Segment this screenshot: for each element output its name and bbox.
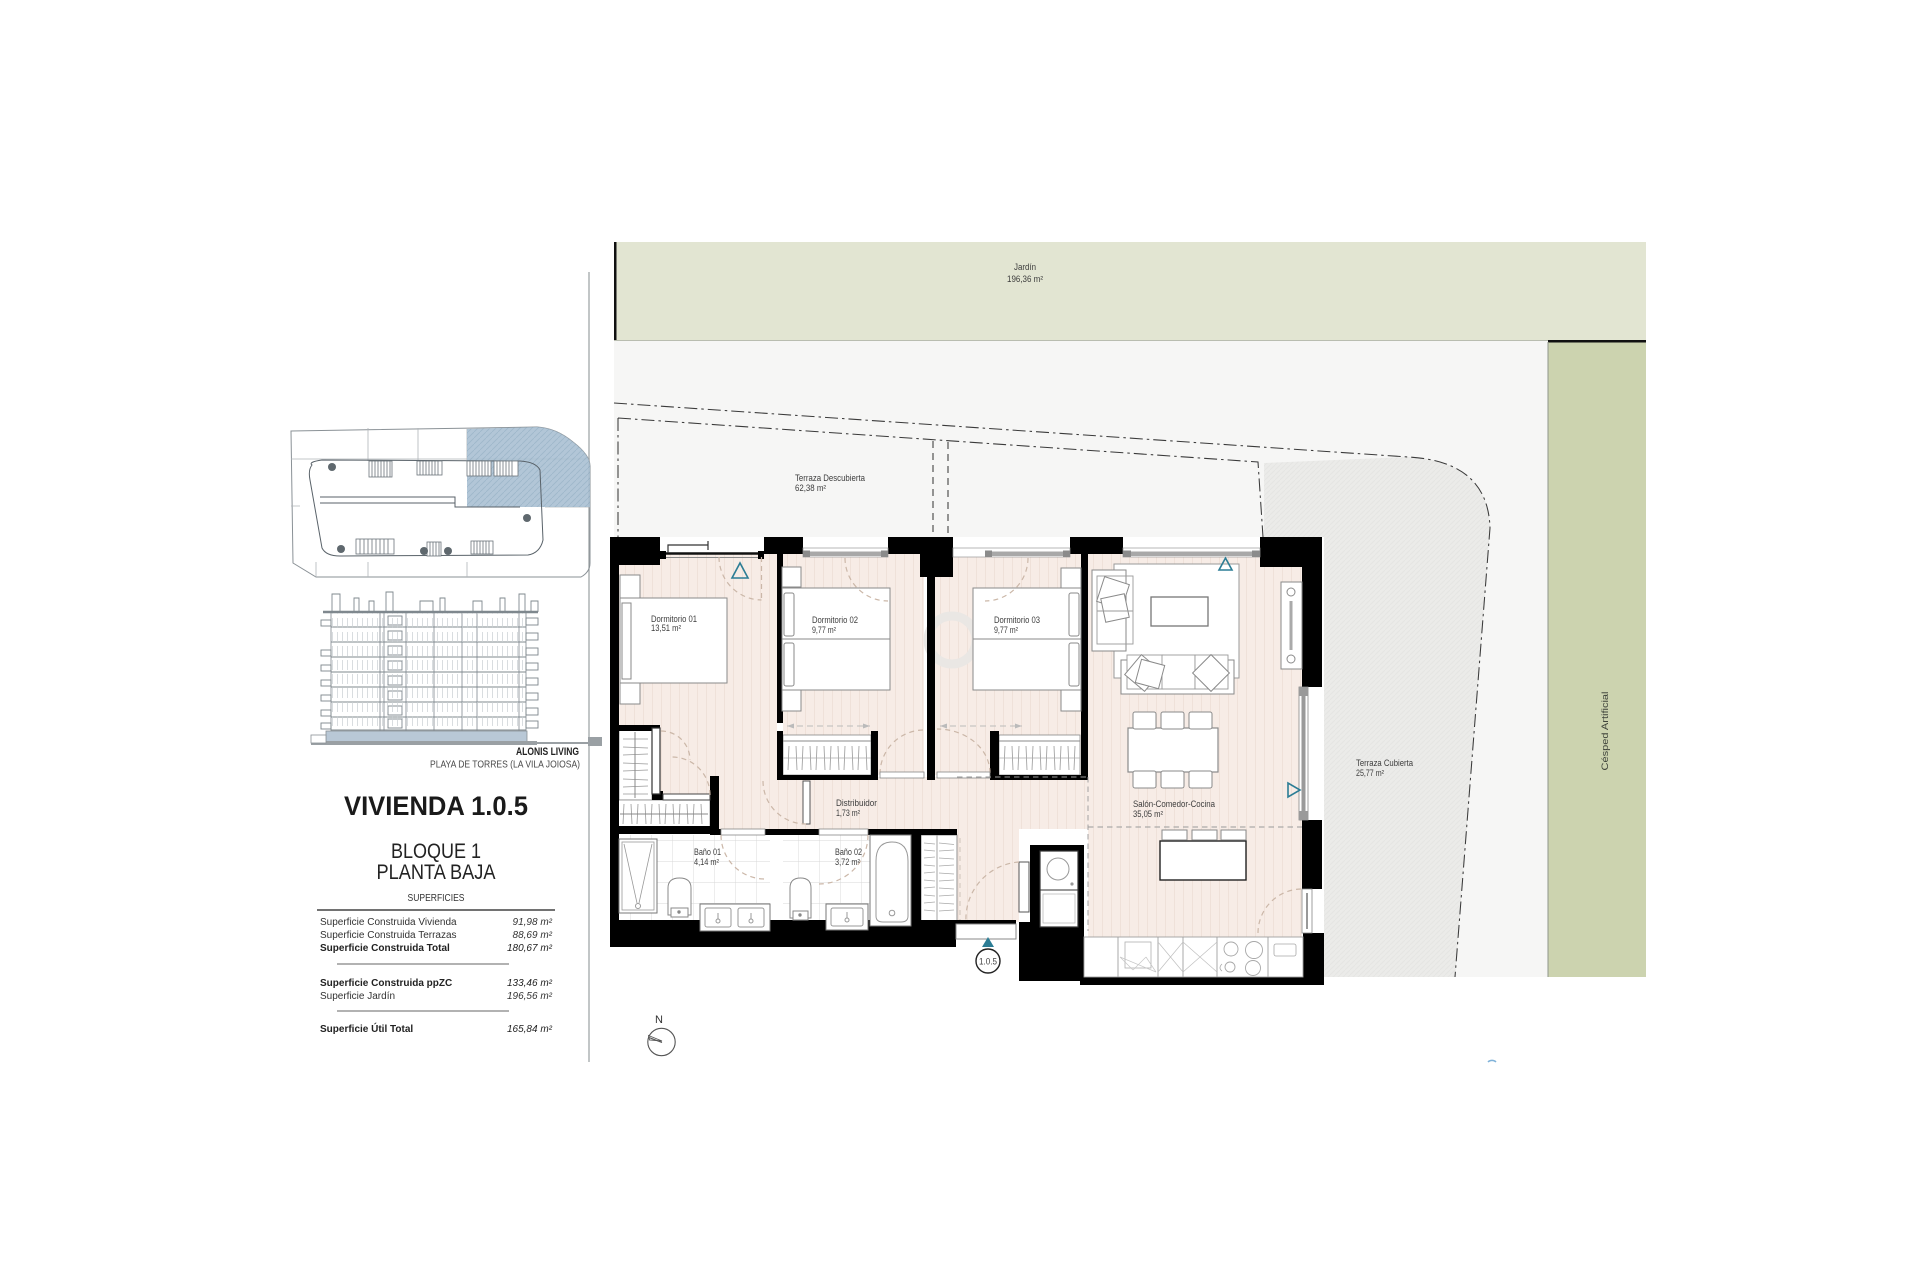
svg-text:Superficie Construida Vivienda: Superficie Construida Vivienda (320, 917, 457, 928)
svg-text:1.0.5: 1.0.5 (979, 957, 997, 967)
svg-text:Terraza Cubierta: Terraza Cubierta (1356, 758, 1413, 768)
svg-text:Dormitorio 02: Dormitorio 02 (812, 615, 858, 625)
svg-text:9,77 m²: 9,77 m² (812, 625, 836, 635)
svg-text:PLANTA BAJA: PLANTA BAJA (377, 861, 496, 884)
svg-text:Superficie Construida Terrazas: Superficie Construida Terrazas (320, 930, 457, 941)
svg-text:4,14 m²: 4,14 m² (694, 857, 719, 867)
svg-text:Baño 02: Baño 02 (835, 847, 862, 857)
svg-text:Superficie Útil Total: Superficie Útil Total (320, 1022, 413, 1035)
svg-text:3,72 m²: 3,72 m² (835, 857, 860, 867)
svg-text:Terraza Descubierta: Terraza Descubierta (795, 473, 865, 483)
svg-text:Salón-Comedor-Cocina: Salón-Comedor-Cocina (1133, 799, 1215, 809)
svg-text:ALONIS LIVING: ALONIS LIVING (516, 746, 579, 758)
svg-text:Superficie Construida Total: Superficie Construida Total (320, 943, 450, 954)
svg-text:91,98 m²: 91,98 m² (513, 917, 553, 928)
svg-text:88,69 m²: 88,69 m² (513, 930, 553, 941)
svg-text:9,77 m²: 9,77 m² (994, 625, 1018, 635)
svg-text:Césped Artificial: Césped Artificial (1600, 692, 1611, 771)
svg-text:Superficie Construida ppZC: Superficie Construida ppZC (320, 978, 452, 989)
svg-text:Superficie Jardín: Superficie Jardín (320, 991, 395, 1002)
svg-text:13,51 m²: 13,51 m² (651, 623, 681, 633)
svg-text:180,67 m²: 180,67 m² (507, 943, 553, 954)
svg-text:Baño 01: Baño 01 (694, 847, 721, 857)
svg-text:Jardín: Jardín (1014, 262, 1036, 272)
svg-text:N: N (655, 1014, 663, 1026)
svg-text:VIVIENDA 1.0.5: VIVIENDA 1.0.5 (344, 791, 528, 821)
svg-text:196,56 m²: 196,56 m² (507, 991, 553, 1002)
svg-text:BLOQUE 1: BLOQUE 1 (391, 840, 481, 863)
svg-text:133,46 m²: 133,46 m² (507, 978, 553, 989)
svg-text:196,36 m²: 196,36 m² (1007, 274, 1043, 284)
svg-text:25,77 m²: 25,77 m² (1356, 768, 1384, 778)
svg-text:Distribuidor: Distribuidor (836, 798, 877, 808)
svg-text:35,05 m²: 35,05 m² (1133, 809, 1163, 819)
svg-text:1,73 m²: 1,73 m² (836, 808, 860, 818)
svg-text:SUPERFICIES: SUPERFICIES (408, 892, 465, 904)
svg-text:PLAYA DE TORRES (LA VILA JOIOS: PLAYA DE TORRES (LA VILA JOIOSA) (430, 759, 580, 771)
svg-text:62,38 m²: 62,38 m² (795, 483, 826, 493)
svg-text:165,84 m²: 165,84 m² (507, 1024, 553, 1035)
svg-text:Dormitorio 03: Dormitorio 03 (994, 615, 1040, 625)
